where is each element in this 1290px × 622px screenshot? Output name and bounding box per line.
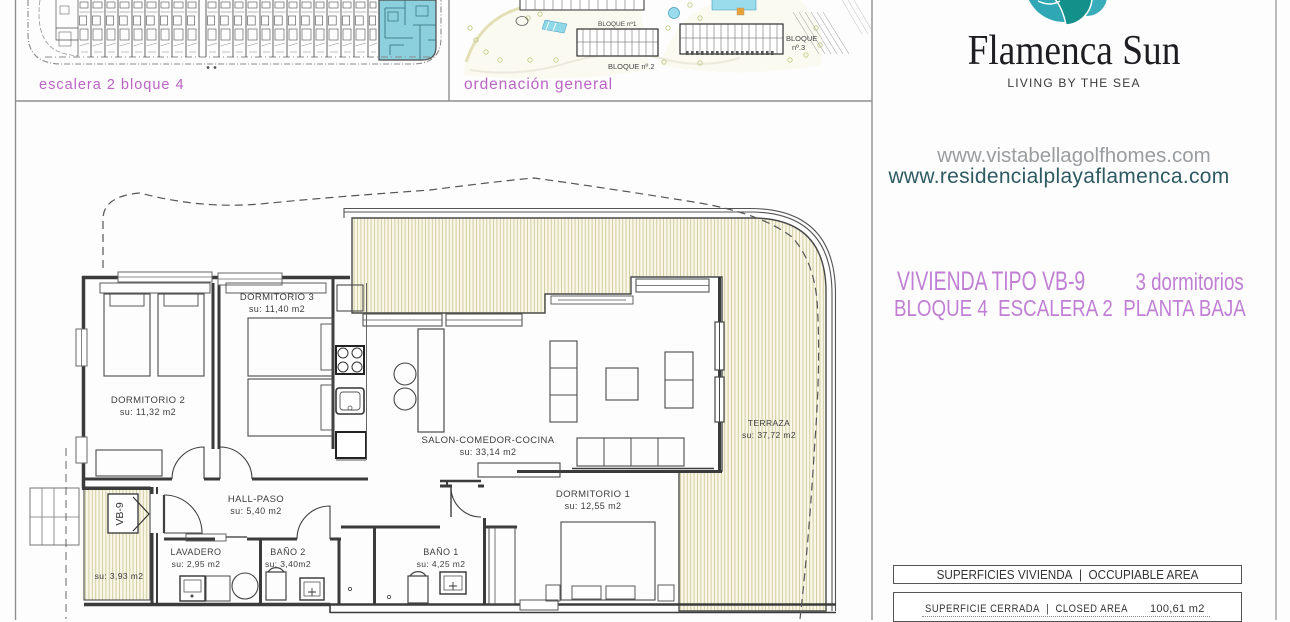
svg-text:su: 11,40 m2: su: 11,40 m2	[249, 304, 305, 314]
svg-text:DORMITORIO 1: DORMITORIO 1	[556, 489, 630, 500]
svg-text:BLOQUE: BLOQUE	[786, 34, 817, 43]
svg-text:BLOQUE nº1: BLOQUE nº1	[598, 21, 637, 28]
svg-text:BAÑO 1: BAÑO 1	[423, 547, 458, 557]
svg-text:su: 3,93 m2: su: 3,93 m2	[95, 571, 144, 581]
svg-text:nº.3: nº.3	[792, 43, 805, 52]
svg-text:su: 2,95 m2: su: 2,95 m2	[172, 559, 221, 569]
svg-text:VB-9: VB-9	[114, 502, 126, 526]
svg-text:DORMITORIO 2: DORMITORIO 2	[111, 395, 185, 406]
svg-text:TERRAZA: TERRAZA	[748, 418, 790, 428]
svg-text:su: 3,40m2: su: 3,40m2	[265, 559, 311, 569]
svg-text:su: 4,25 m2: su: 4,25 m2	[417, 559, 466, 569]
svg-text:DORMITORIO 3: DORMITORIO 3	[240, 292, 314, 303]
svg-text:SALON-COMEDOR-COCINA: SALON-COMEDOR-COCINA	[421, 435, 554, 446]
svg-text:HALL-PASO: HALL-PASO	[228, 494, 284, 505]
svg-text:LAVADERO: LAVADERO	[171, 547, 222, 557]
svg-text:su: 37,72 m2: su: 37,72 m2	[742, 430, 796, 440]
svg-text:su: 11,32 m2: su: 11,32 m2	[120, 407, 176, 417]
svg-text:BLOQUE nº.2: BLOQUE nº.2	[608, 62, 655, 71]
svg-text:su: 12,55 m2: su: 12,55 m2	[565, 501, 622, 511]
svg-text:su: 5,40 m2: su: 5,40 m2	[230, 506, 281, 516]
svg-text:su: 33,14 m2: su: 33,14 m2	[460, 447, 517, 457]
svg-text:BAÑO 2: BAÑO 2	[270, 547, 305, 557]
